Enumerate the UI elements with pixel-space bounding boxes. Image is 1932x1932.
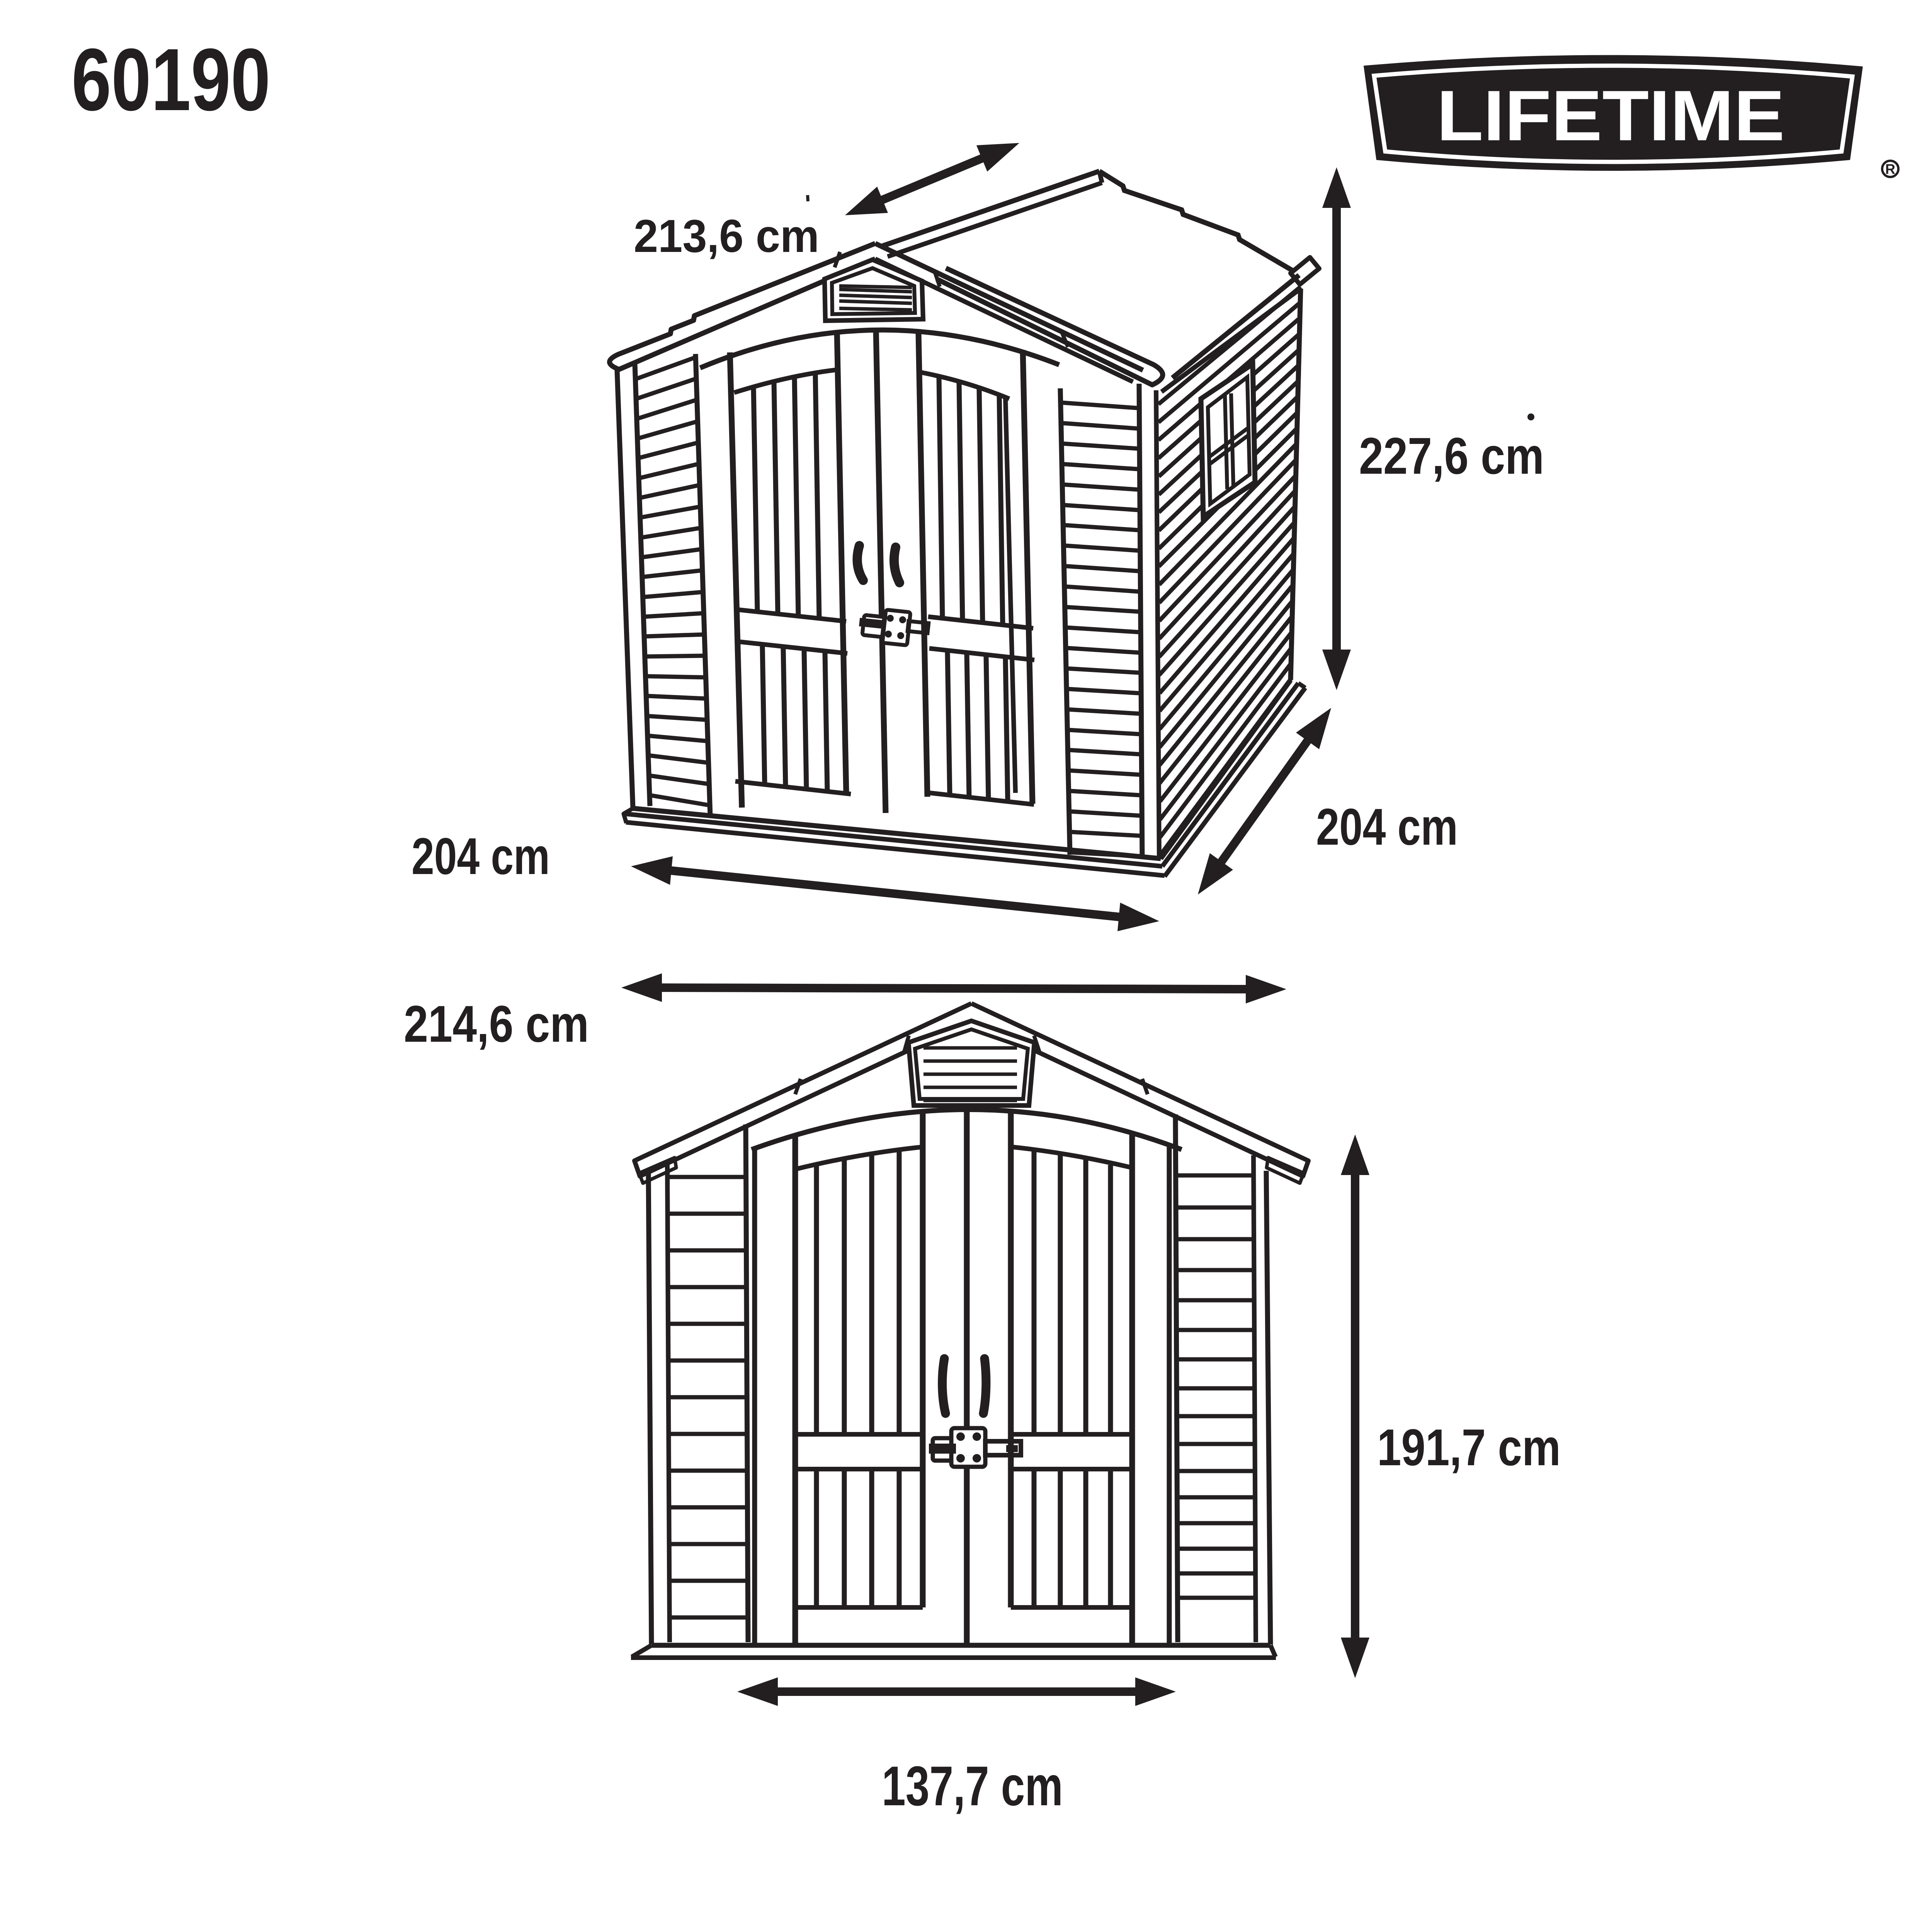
svg-text:R: R: [1885, 161, 1895, 177]
svg-text:137,7 cm: 137,7 cm: [882, 1755, 1063, 1817]
svg-text:204 cm: 204 cm: [412, 828, 550, 885]
svg-text:60190: 60190: [71, 30, 270, 129]
svg-text:204 cm: 204 cm: [1316, 798, 1458, 856]
svg-text:214,6 cm: 214,6 cm: [404, 995, 589, 1053]
svg-text:227,6 cm: 227,6 cm: [1359, 427, 1544, 485]
svg-text:213,6 cm: 213,6 cm: [634, 210, 819, 262]
svg-text:LIFETIME: LIFETIME: [1437, 76, 1785, 156]
svg-text:191,7 cm: 191,7 cm: [1377, 1419, 1561, 1476]
